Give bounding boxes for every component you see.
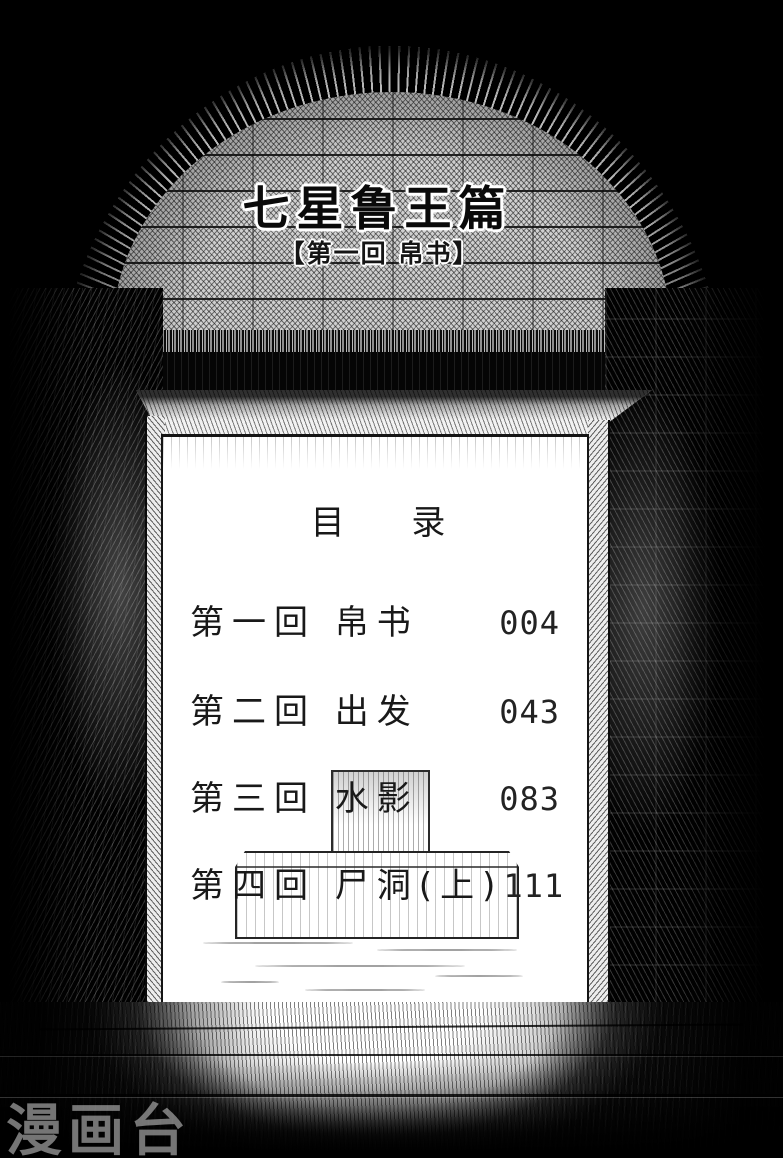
ground-shadow-line [255,965,465,967]
door-top-reveal [136,390,652,438]
series-title: 七星鲁王篇 [0,170,769,239]
wall-left-hatched [0,288,163,1004]
toc-row: 第四回 尸洞(上) 111 [190,858,560,907]
ground-shadow-line [435,975,523,977]
toc-entry-page: 111 [503,867,564,905]
toc-entry-page: 004 [499,604,560,642]
floor-plank-line [40,1024,743,1031]
ground-shadow-line [221,981,279,983]
ground-shadow-line [203,942,353,944]
toc-row: 第三回 水影 083 [190,771,560,820]
toc-entry-page: 083 [499,780,560,818]
doorway-opening-page: 目 录 第一回 帛书 004 第二回 出发 043 第三回 水影 083 第四回… [161,434,589,1010]
ground-shadow-line [305,989,425,991]
doorway-top-shading [163,437,587,469]
door-jamb-right [588,420,610,1008]
toc-row: 第一回 帛书 004 [190,595,560,644]
watermark-logo: 漫画台 [6,1086,192,1158]
toc-entry-label: 第二回 出发 [190,684,419,733]
stone-lintel-band [90,352,694,394]
masonry-tick-strip [104,330,684,354]
floor-plank-line [0,1054,783,1056]
toc-row: 第二回 出发 043 [190,684,560,733]
toc-heading: 目 录 [163,495,587,544]
toc-entry-page: 043 [499,693,560,731]
ground-shadow-line [377,949,517,951]
chapter-banner: 【第一回 帛书】 [0,234,771,270]
toc-entry-label: 第四回 尸洞(上) [190,858,503,907]
toc-entry-label: 第一回 帛书 [190,595,419,644]
toc-entry-label: 第三回 水影 [190,771,419,820]
manga-contents-page: 七星鲁王篇 【第一回 帛书】 目 录 第一回 帛书 004 第二回 出发 043… [0,0,783,1158]
